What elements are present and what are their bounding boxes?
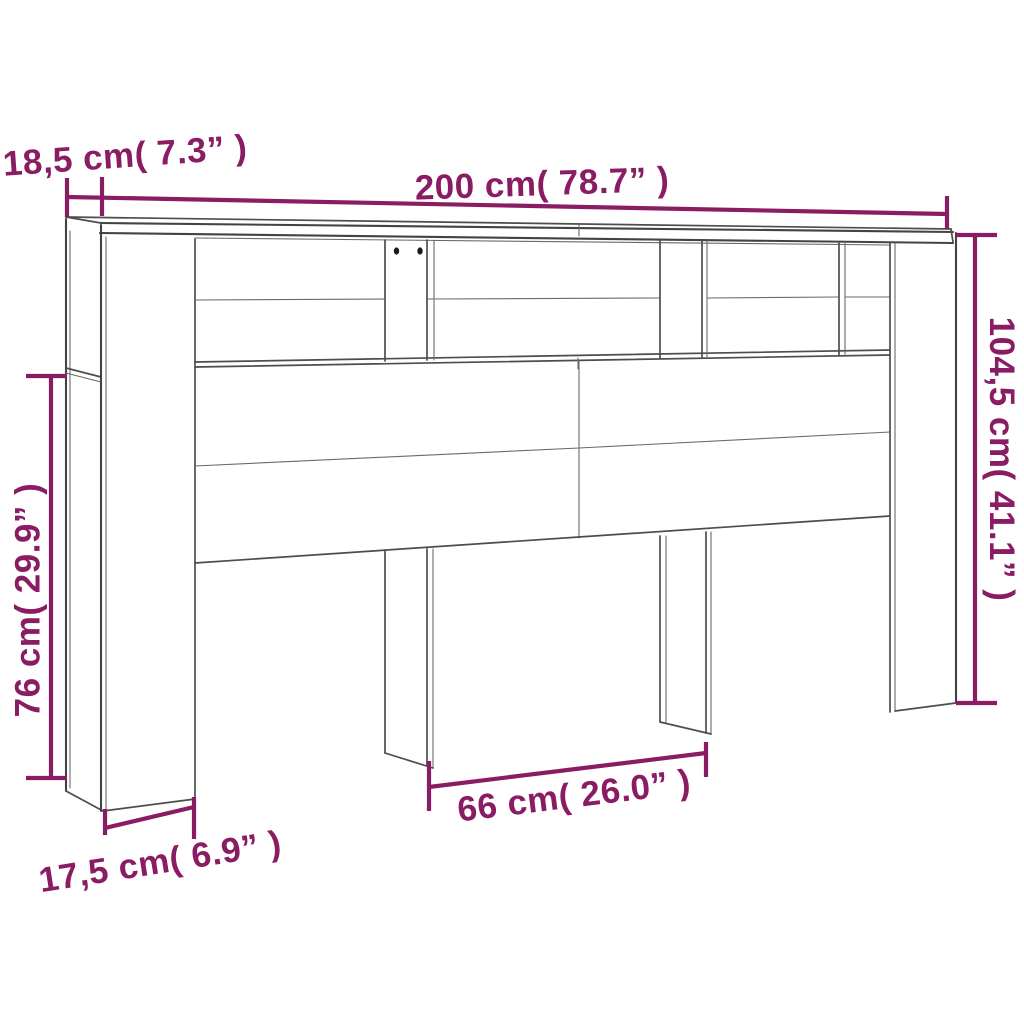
left-column [101,225,195,811]
pin-hole-dot [417,247,422,254]
right-side [890,233,956,712]
dimension-top-depth-and-width: 18,5 cm( 7.3” ) 200 cm( 78.7” ) [2,128,947,229]
shelf-partition-middle [660,240,707,358]
shelf-mid-3 [707,297,839,298]
shelf-unit [195,238,890,369]
leg-bottom-edge [385,753,433,768]
column-width-dimension-line [105,807,194,828]
furniture-outline [66,217,956,811]
dimension-diagram-page: 18,5 cm( 7.3” ) 200 cm( 78.7” ) 104,5 cm… [0,0,1024,1024]
width-label: 200 cm( 78.7” ) [414,160,670,208]
front-panel-mid-seam [195,432,890,466]
left-panel-shelf-line-bottom [66,373,101,382]
right-middle-leg [660,532,711,734]
dimension-front-height: 76 cm( 29.9” ) [8,376,67,778]
front-panels [195,361,890,563]
top-depth-label: 18,5 cm( 7.3” ) [2,128,249,184]
center-opening-label: 66 cm( 26.0” ) [455,762,693,829]
left-panel-bottom-edge [66,791,103,811]
headboard-dimension-diagram: 18,5 cm( 7.3” ) 200 cm( 78.7” ) 104,5 cm… [0,0,1024,1024]
shelf-partition-left [385,240,434,361]
column-width-label: 17,5 cm( 6.9” ) [36,823,284,900]
leg-bottom-edge [660,722,711,734]
left-middle-leg [385,549,433,768]
dimension-height: 104,5 cm( 41.1” ) [956,235,1021,703]
front-height-label: 76 cm( 29.9” ) [8,483,47,718]
left-panel-shelf-line-top [66,368,101,377]
dimension-center-opening: 66 cm( 26.0” ) [429,742,706,829]
shelf-mid-1 [195,299,385,300]
height-label: 104,5 cm( 41.1” ) [982,317,1021,602]
top-board [66,217,953,243]
right-panel-bottom-edge [895,703,956,711]
left-side-panel [66,219,103,811]
shelf-mid-2 [427,298,660,299]
dimension-column-width: 17,5 cm( 6.9” ) [36,797,284,900]
pin-hole-dot [394,247,399,254]
front-panel-bottom-edge [195,516,890,563]
shelf-partition-right [839,242,845,355]
